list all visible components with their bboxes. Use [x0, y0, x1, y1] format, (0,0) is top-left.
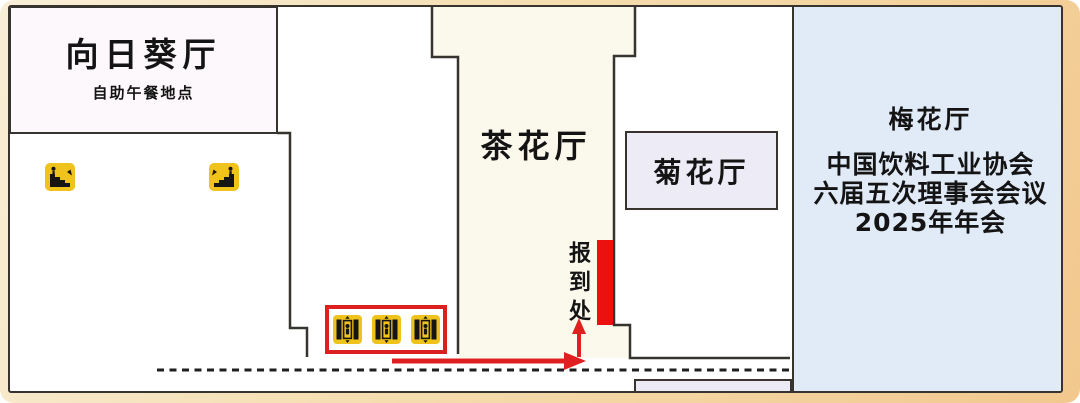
chrysanthemum-hall-label: 菊花厅	[653, 151, 749, 191]
elevator-icon	[333, 315, 362, 344]
registration-desk-bar	[597, 240, 613, 325]
sunflower-hall-label: 向日葵厅	[66, 37, 222, 73]
registration-desk-label: 报到处	[561, 241, 593, 351]
room-sunflower-hall: 向日葵厅 自助午餐地点	[9, 6, 278, 134]
event-line-2: 六届五次理事会会议	[794, 179, 1063, 208]
elevator-icon	[411, 315, 440, 344]
plum-hall-event-text: 中国饮料工业协会 六届五次理事会会议 2025年年会	[794, 150, 1063, 237]
camellia-hall-label: 茶花厅	[458, 121, 614, 167]
plum-hall-label: 梅花厅	[794, 100, 1063, 136]
event-line-1: 中国饮料工业协会	[794, 150, 1063, 179]
room-plum-hall: 梅花厅 中国饮料工业协会 六届五次理事会会议 2025年年会	[792, 5, 1063, 393]
sunflower-hall-subtitle: 自助午餐地点	[92, 82, 194, 103]
elevator-bank-box	[325, 305, 447, 354]
escalator-up-icon	[209, 163, 239, 191]
venue-floor-plan: 向日葵厅 自助午餐地点 茶花厅 菊花	[0, 0, 1080, 403]
lower-structure-box	[634, 379, 792, 393]
event-line-3: 2025年年会	[794, 208, 1063, 237]
elevator-icon	[372, 315, 401, 344]
wall-corridor-left	[432, 7, 458, 354]
escalator-down-icon	[45, 163, 75, 191]
wall-left-lobby	[277, 133, 307, 357]
room-chrysanthemum-hall: 菊花厅	[625, 131, 778, 210]
floor-plan-canvas: 向日葵厅 自助午餐地点 茶花厅 菊花	[8, 5, 1063, 393]
